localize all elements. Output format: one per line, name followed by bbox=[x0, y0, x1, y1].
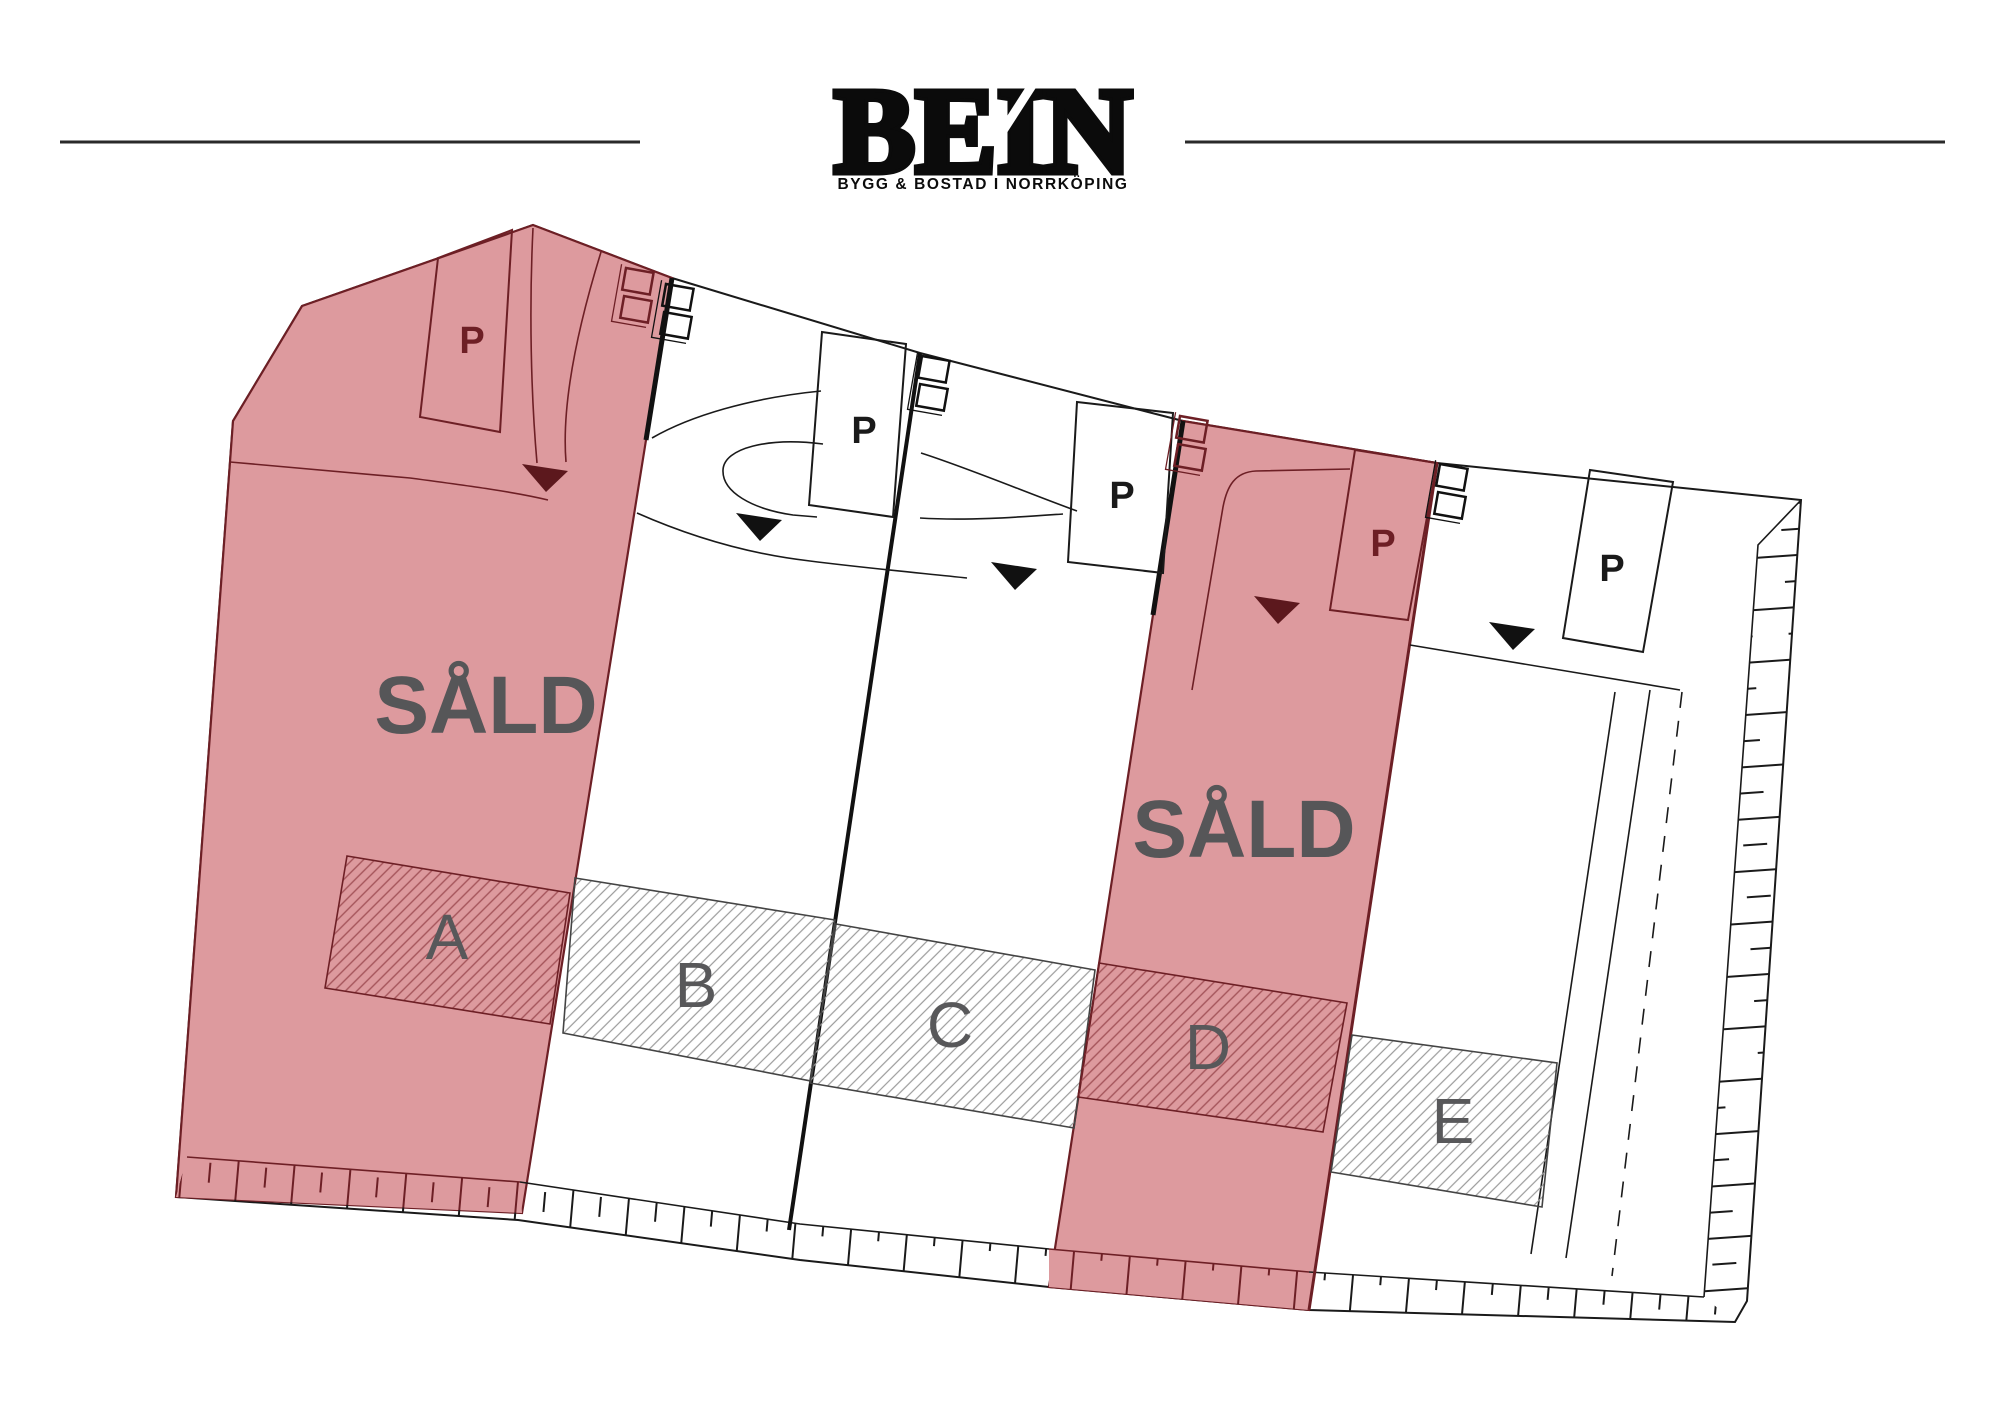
site-plan-page: BEIN BYGG & BOSTAD I NORRKÖPING bbox=[0, 0, 2000, 1414]
plot-a-sold-label: SÅLD bbox=[374, 660, 597, 751]
plot-a-parking-label: P bbox=[459, 320, 484, 362]
plot-b-parking-label: P bbox=[851, 410, 876, 452]
plot-a-letter: A bbox=[426, 901, 469, 973]
plot-d-sold-label: SÅLD bbox=[1132, 784, 1355, 875]
brand-tagline: BYGG & BOSTAD I NORRKÖPING bbox=[837, 176, 1128, 193]
header: BEIN BYGG & BOSTAD I NORRKÖPING bbox=[60, 64, 1945, 199]
plot-d-letter: D bbox=[1185, 1011, 1231, 1083]
plot-e-parking-label: P bbox=[1599, 548, 1624, 590]
site-plan-svg: BEIN BYGG & BOSTAD I NORRKÖPING bbox=[0, 0, 2000, 1414]
plot-c-letter: C bbox=[927, 989, 973, 1061]
plot-d-parking-label: P bbox=[1370, 523, 1395, 565]
plot-c-parking-label: P bbox=[1109, 475, 1134, 517]
plot-b-letter: B bbox=[675, 949, 718, 1021]
plot-e-letter: E bbox=[1432, 1085, 1475, 1157]
